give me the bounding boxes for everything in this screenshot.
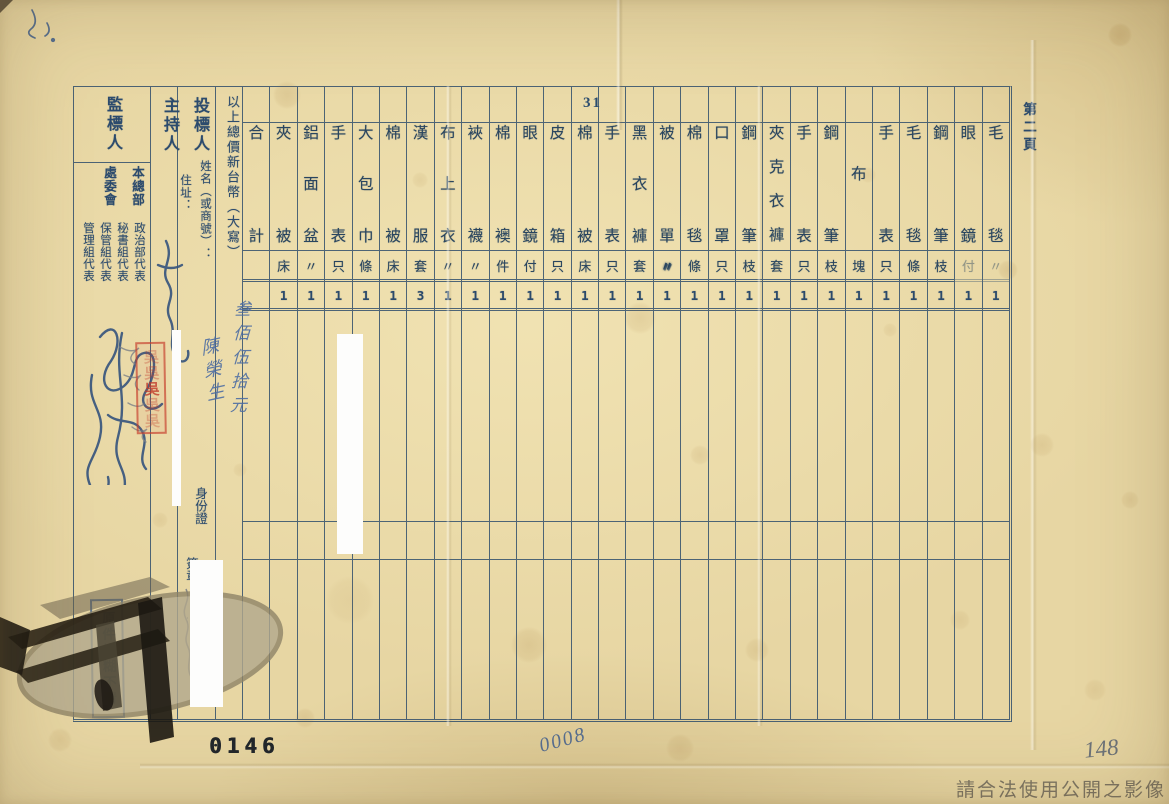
- body-cell: [709, 522, 735, 560]
- body-cell: [298, 560, 324, 719]
- body-cell: [517, 560, 543, 719]
- item-qty-cell: 1: [544, 282, 570, 311]
- body-cell: [462, 560, 488, 719]
- item-name-char: 鋼: [933, 126, 949, 142]
- item-name-cell: 手表: [873, 123, 899, 251]
- item-name-char: 夾: [769, 126, 785, 142]
- stain: [1084, 679, 1106, 701]
- item-qty-cell: 1: [736, 282, 762, 311]
- item-unit-cell: 只: [544, 251, 570, 282]
- item-qty-cell: 1: [955, 282, 981, 311]
- item-name-cell: 被單: [654, 123, 680, 251]
- item-unit-cell: 〃: [462, 251, 488, 282]
- item-name-cell: 棉被: [572, 123, 598, 251]
- item-name-char: 毛: [988, 126, 1004, 142]
- item-column: 眼鏡付1: [955, 87, 982, 719]
- item-unit-cell: 枝: [928, 251, 954, 282]
- item-name-cell: 棉毯: [681, 123, 707, 251]
- corner-number: 148: [1083, 734, 1120, 763]
- header-blank-cell: [900, 87, 926, 123]
- body-cell: [654, 560, 680, 719]
- body-cell: [572, 522, 598, 560]
- item-qty-cell: 1: [983, 282, 1009, 311]
- item-column: 鋼筆枝1: [928, 87, 955, 719]
- item-name-char: 被: [577, 229, 593, 245]
- item-unit-cell: 只: [325, 251, 351, 282]
- item-column: 夾克衣褲套1: [763, 87, 790, 719]
- stain: [1121, 491, 1139, 509]
- body-cell: [517, 311, 543, 522]
- header-blank-cell: [407, 87, 433, 123]
- item-qty-cell: 3: [407, 282, 433, 311]
- item-unit-cell: 床: [572, 251, 598, 282]
- sheet-number: 31: [583, 95, 602, 112]
- body-cell: [407, 311, 433, 522]
- body-cell: [353, 560, 379, 719]
- item-name-cell: 夾被: [270, 123, 296, 251]
- header-blank-cell: [763, 87, 789, 123]
- item-unit-cell: 條: [353, 251, 379, 282]
- item-name-char: 鋼: [741, 126, 757, 142]
- redaction-box: [172, 330, 181, 506]
- body-cell: [243, 522, 269, 560]
- item-qty-cell: 1: [435, 282, 461, 311]
- header-blank-cell: [325, 87, 351, 123]
- item-name-cell: 皮箱: [544, 123, 570, 251]
- body-cell: [270, 311, 296, 522]
- item-qty-cell: 1: [599, 282, 625, 311]
- paper-crease: [140, 763, 1169, 769]
- item-unit-cell: 床: [270, 251, 296, 282]
- item-column: 手表只1: [873, 87, 900, 719]
- body-cell: [763, 560, 789, 719]
- item-column: 手表只1: [791, 87, 818, 719]
- body-cell: [298, 522, 324, 560]
- bidder-label: 投標人: [187, 97, 211, 154]
- body-cell: [681, 311, 707, 522]
- item-qty-cell: 1: [490, 282, 516, 311]
- body-cell: [490, 522, 516, 560]
- header-blank-cell: [928, 87, 954, 123]
- item-qty-cell: 1: [270, 282, 296, 311]
- item-unit-cell: 套: [626, 251, 652, 282]
- item-name-char: 夾: [276, 126, 292, 142]
- item-name-char: 棉: [577, 126, 593, 142]
- item-name-char: 衣: [769, 194, 785, 210]
- item-column: 棉襖件1: [490, 87, 517, 719]
- item-column: 皮箱只1: [544, 87, 571, 719]
- body-cell: [955, 560, 981, 719]
- header-blank-cell: [298, 87, 324, 123]
- item-name-char: 皮: [550, 126, 566, 142]
- usage-watermark: 請合法使用公開之影像: [956, 775, 1166, 802]
- item-unit-cell: 件: [490, 251, 516, 282]
- body-cell: [435, 311, 461, 522]
- body-cell: [626, 522, 652, 560]
- header-blank-cell: [490, 87, 516, 123]
- red-seal-stamp: 吳: [135, 342, 167, 435]
- item-name-char: 棉: [687, 126, 703, 142]
- header-blank-cell: [435, 87, 461, 123]
- item-unit-cell: 只: [709, 251, 735, 282]
- item-name-char: 表: [605, 229, 621, 245]
- body-cell: [983, 522, 1009, 560]
- header-blank-cell: [736, 87, 762, 123]
- item-column: 棉被床1: [572, 87, 599, 719]
- item-unit-cell: 只: [791, 251, 817, 282]
- body-cell: [298, 311, 324, 522]
- org-headquarters: 本總部: [128, 166, 147, 220]
- item-unit-cell: 條: [681, 251, 707, 282]
- item-name-char: 筆: [933, 229, 949, 245]
- signature-scribbles: [70, 225, 270, 485]
- item-column: 棉毯條1: [681, 87, 708, 719]
- item-name-char: 鏡: [522, 229, 538, 245]
- stain: [1108, 23, 1132, 47]
- header-blank-cell: [681, 87, 707, 123]
- body-cell: [435, 522, 461, 560]
- item-unit-cell: 〃: [654, 251, 680, 282]
- item-name-cell: 裌襪: [462, 123, 488, 251]
- item-qty-cell: 1: [900, 282, 926, 311]
- item-name-char: 毛: [906, 126, 922, 142]
- item-name-char: 巾: [358, 229, 374, 245]
- ink-marks: [22, 4, 68, 52]
- archive-logo-watermark: [0, 575, 300, 760]
- body-cell: [928, 522, 954, 560]
- item-unit-cell: 付: [955, 251, 981, 282]
- body-cell: [490, 560, 516, 719]
- header-blank-cell: [791, 87, 817, 123]
- body-cell: [928, 560, 954, 719]
- item-name-cell: 棉被: [380, 123, 406, 251]
- body-cell: [900, 560, 926, 719]
- item-qty-cell: 1: [626, 282, 652, 311]
- item-name-char: 眼: [961, 126, 977, 142]
- item-unit-cell: 床: [380, 251, 406, 282]
- body-cell: [270, 522, 296, 560]
- item-column: 漢服套3: [407, 87, 434, 719]
- item-name-char: 棉: [495, 126, 511, 142]
- header-blank-cell: [983, 87, 1009, 123]
- item-unit-cell: 只: [599, 251, 625, 282]
- item-name-cell: 手表: [599, 123, 625, 251]
- item-name-char: 襖: [495, 229, 511, 245]
- id-card-label: 身份證: [191, 487, 210, 525]
- body-cell: [407, 522, 433, 560]
- body-cell: [791, 560, 817, 719]
- body-cell: [983, 311, 1009, 522]
- item-name-char: 包: [358, 177, 374, 193]
- item-unit-cell: 條: [900, 251, 926, 282]
- item-name-char: 裌: [468, 126, 484, 142]
- item-unit-cell: 〃: [983, 251, 1009, 282]
- item-name-char: 表: [878, 229, 894, 245]
- item-column: 布上衣〃1: [435, 87, 462, 719]
- body-cell: [846, 560, 872, 719]
- item-name-char: 手: [796, 126, 812, 142]
- item-unit-cell: 〃: [298, 251, 324, 282]
- body-cell: [846, 311, 872, 522]
- item-name-char: 手: [605, 126, 621, 142]
- item-name-char: 被: [659, 126, 675, 142]
- body-cell: [955, 311, 981, 522]
- item-name-cell: 鋼筆: [736, 123, 762, 251]
- header-blank-cell: [626, 87, 652, 123]
- item-qty-cell: 1: [709, 282, 735, 311]
- supervisor-label: 監標人: [100, 96, 124, 162]
- body-cell: [681, 522, 707, 560]
- item-name-cell: 布上衣: [435, 123, 461, 251]
- item-name-char: 褲: [769, 228, 785, 244]
- item-unit-cell: 付: [517, 251, 543, 282]
- body-cell: [818, 522, 844, 560]
- item-unit-cell: 塊: [846, 251, 872, 282]
- item-unit-cell: 套: [763, 251, 789, 282]
- item-column: 布塊1: [846, 87, 873, 719]
- header-blank-cell: [243, 87, 269, 123]
- item-name-char: 單: [659, 229, 675, 245]
- body-cell: [763, 522, 789, 560]
- item-unit-cell: 〃: [435, 251, 461, 282]
- item-qty-cell: 1: [846, 282, 872, 311]
- item-name-char: 鋼: [824, 126, 840, 142]
- body-cell: [380, 522, 406, 560]
- page-label: 第二頁: [1018, 102, 1038, 155]
- item-name-char: 筆: [741, 229, 757, 245]
- header-blank-cell: [818, 87, 844, 123]
- body-cell: [791, 522, 817, 560]
- body-cell: [380, 560, 406, 719]
- body-cell: [983, 560, 1009, 719]
- header-blank-cell: [846, 87, 872, 123]
- body-cell: [873, 522, 899, 560]
- item-name-cell: 毛毯: [900, 123, 926, 251]
- item-name-cell: 棉襖: [490, 123, 516, 251]
- item-name-cell: 黑衣褲: [626, 123, 652, 251]
- header-blank-cell: [709, 87, 735, 123]
- item-name-char: 被: [385, 229, 401, 245]
- item-name-char: 表: [331, 229, 347, 245]
- item-name-cell: 毛毯: [983, 123, 1009, 251]
- body-cell: [572, 311, 598, 522]
- header-blank-cell: [654, 87, 680, 123]
- item-qty-cell: 1: [517, 282, 543, 311]
- body-cell: [490, 311, 516, 522]
- body-cell: [654, 311, 680, 522]
- handwritten-number: 0008: [537, 723, 589, 758]
- stain: [666, 734, 694, 762]
- item-name-char: 罩: [714, 229, 730, 245]
- serial-number: 0146: [209, 734, 280, 758]
- item-name-char: 鋁: [303, 126, 319, 142]
- header-blank-cell: [380, 87, 406, 123]
- body-cell: [380, 311, 406, 522]
- body-cell: [626, 311, 652, 522]
- item-name-char: 棉: [385, 126, 401, 142]
- item-name-cell: 漢服: [407, 123, 433, 251]
- item-name-char: 襪: [468, 229, 484, 245]
- item-unit-cell: 套: [407, 251, 433, 282]
- item-unit-cell: 枝: [818, 251, 844, 282]
- item-name-char: 手: [878, 126, 894, 142]
- body-cell: [572, 560, 598, 719]
- red-seal-character: 吳: [140, 380, 161, 395]
- item-column: 黑衣褲套1: [626, 87, 653, 719]
- item-name-char: 毯: [906, 229, 922, 245]
- body-cell: [763, 311, 789, 522]
- body-cell: [900, 522, 926, 560]
- body-cell: [709, 311, 735, 522]
- body-cell: [681, 560, 707, 719]
- header-blank-cell: [517, 87, 543, 123]
- header-blank-cell: [544, 87, 570, 123]
- body-cell: [791, 311, 817, 522]
- item-qty-cell: 1: [298, 282, 324, 311]
- item-column: 毛毯〃1: [983, 87, 1009, 719]
- body-cell: [407, 560, 433, 719]
- body-cell: [709, 560, 735, 719]
- item-column: 鋼筆枝1: [736, 87, 763, 719]
- item-name-char: 上: [440, 177, 456, 193]
- item-name-cell: 口罩: [709, 123, 735, 251]
- item-column: 鋁面盆〃1: [298, 87, 325, 719]
- org-committee: 處委會: [100, 166, 119, 220]
- body-cell: [325, 560, 351, 719]
- item-qty-cell: 1: [462, 282, 488, 311]
- item-name-char: 漢: [413, 126, 429, 142]
- body-cell: [736, 560, 762, 719]
- item-qty-cell: 1: [818, 282, 844, 311]
- item-name-char: 布: [440, 126, 456, 142]
- item-name-char: 盆: [303, 229, 319, 245]
- body-cell: [928, 311, 954, 522]
- body-cell: [654, 522, 680, 560]
- redaction-box: [190, 560, 223, 707]
- item-name-char: 毯: [687, 229, 703, 245]
- body-cell: [544, 522, 570, 560]
- item-qty-cell: 1: [873, 282, 899, 311]
- item-name-char: 克: [769, 160, 785, 176]
- header-blank-cell: [873, 87, 899, 123]
- body-cell: [818, 560, 844, 719]
- item-column: 眼鏡付1: [517, 87, 544, 719]
- body-cell: [626, 560, 652, 719]
- item-qty-cell: 1: [654, 282, 680, 311]
- body-cell: [599, 522, 625, 560]
- item-name-cell: 眼鏡: [517, 123, 543, 251]
- redaction-box: [337, 334, 363, 554]
- item-name-char: 衣: [440, 229, 456, 245]
- item-name-char: 眼: [522, 126, 538, 142]
- body-cell: [544, 311, 570, 522]
- body-cell: [462, 522, 488, 560]
- body-cell: [873, 560, 899, 719]
- item-name-char: 毯: [988, 229, 1004, 245]
- item-name-cell: 眼鏡: [955, 123, 981, 251]
- item-name-char: 褲: [632, 229, 648, 245]
- item-name-cell: 布: [846, 123, 872, 251]
- item-qty-cell: 1: [791, 282, 817, 311]
- item-qty-cell: 1: [380, 282, 406, 311]
- item-name-char: 口: [714, 126, 730, 142]
- header-blank-cell: [599, 87, 625, 123]
- item-name-char: 表: [796, 229, 812, 245]
- item-name-cell: 夾克衣褲: [763, 123, 789, 251]
- item-name-char: 合: [248, 126, 264, 142]
- item-name-char: 手: [331, 126, 347, 142]
- item-name-cell: 手表: [791, 123, 817, 251]
- item-column: 棉被床1: [380, 87, 407, 719]
- body-cell: [435, 560, 461, 719]
- item-column: 手表只1: [599, 87, 626, 719]
- body-cell: [599, 311, 625, 522]
- body-cell: [517, 522, 543, 560]
- item-name-cell: 大包巾: [353, 123, 379, 251]
- item-name-char: 大: [358, 126, 374, 142]
- item-name-cell: 手表: [325, 123, 351, 251]
- body-cell: [873, 311, 899, 522]
- header-blank-cell: [955, 87, 981, 123]
- item-name-char: 衣: [632, 177, 648, 193]
- body-cell: [736, 522, 762, 560]
- item-column: 口罩只1: [709, 87, 736, 719]
- header-blank-cell: [353, 87, 379, 123]
- item-name-char: 面: [303, 177, 319, 193]
- body-cell: [955, 522, 981, 560]
- item-column: 裌襪〃1: [462, 87, 489, 719]
- corner-notch: [0, 0, 13, 13]
- item-name-cell: 鋼筆: [928, 123, 954, 251]
- item-qty-cell: 1: [353, 282, 379, 311]
- item-qty-cell: 1: [325, 282, 351, 311]
- item-qty-cell: 1: [928, 282, 954, 311]
- item-column: 被單〃1: [654, 87, 681, 719]
- item-name-char: 鏡: [961, 229, 977, 245]
- item-unit-cell: 枝: [736, 251, 762, 282]
- body-cell: [900, 311, 926, 522]
- item-name-char: 筆: [824, 229, 840, 245]
- item-qty-cell: 1: [681, 282, 707, 311]
- item-column: 鋼筆枝1: [818, 87, 845, 719]
- header-blank-cell: [462, 87, 488, 123]
- item-name-char: 被: [276, 229, 292, 245]
- scanned-document-page: 監標人 處委會 本總部 管理組代表 保管組代表 秘書組代表 政治部代表 主持人: [0, 0, 1169, 804]
- body-cell: [544, 560, 570, 719]
- item-unit-cell: 只: [873, 251, 899, 282]
- header-blank-cell: [270, 87, 296, 123]
- item-qty-cell: 1: [572, 282, 598, 311]
- item-column: 毛毯條1: [900, 87, 927, 719]
- body-cell: [462, 311, 488, 522]
- item-name-cell: 鋁面盆: [298, 123, 324, 251]
- item-name-cell: 鋼筆: [818, 123, 844, 251]
- item-name-char: 布: [851, 167, 867, 183]
- item-name-char: 箱: [550, 229, 566, 245]
- body-cell: [818, 311, 844, 522]
- item-qty-cell: 1: [763, 282, 789, 311]
- body-cell: [599, 560, 625, 719]
- item-name-char: 服: [413, 229, 429, 245]
- item-name-char: 黑: [632, 126, 648, 142]
- body-cell: [736, 311, 762, 522]
- stain: [1030, 433, 1054, 457]
- body-cell: [846, 522, 872, 560]
